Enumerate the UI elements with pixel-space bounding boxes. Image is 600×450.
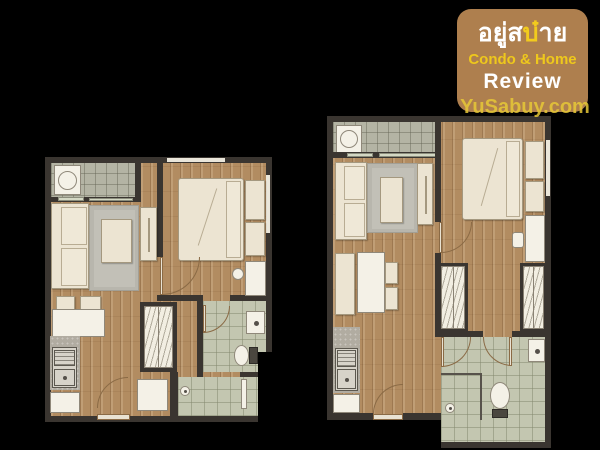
dining-table [52,309,105,337]
washing-machine-drum [340,130,358,148]
floorplan-page: { "watermark": { "bg_color": "#ae7f4e", … [0,0,600,450]
shoe-cabinet [137,379,168,411]
washing-machine-drum [58,171,77,190]
coffee-table [380,177,403,223]
watermark-thai-accent: บ๋ [523,19,539,47]
washing-machine [336,125,362,153]
shower-head [180,386,190,396]
blanket-fold [198,188,217,245]
tv-console [140,207,157,261]
tv-console [417,163,433,225]
kitchen-sink [337,369,356,389]
dining-table [357,252,385,313]
toilet-tank [492,409,508,418]
plan-notch [258,352,272,422]
wall-bottom [403,413,441,420]
dining-chair [80,296,101,310]
sofa-cushion [61,248,87,286]
blanket-fold [481,148,498,206]
desk [525,215,545,262]
watermark-tagline: Condo & Home [457,51,588,68]
wall-bedroom [435,116,441,222]
tv-console-handle [148,218,150,252]
base-cabinet [50,392,80,413]
double-bed [178,178,244,261]
bedside-cabinet [245,180,265,220]
balcony-sliding-door [89,198,133,201]
shower-head-dot [184,390,187,393]
washing-machine [54,165,81,195]
wash-basin [246,311,265,334]
shower-enclosure [441,373,482,420]
watermark-website: YuSabuy.com [460,96,590,119]
toilet [234,345,249,366]
vanity-desk [245,261,266,296]
kitchen-sink [54,369,75,386]
toilet [490,382,510,409]
dining-chair [385,287,398,310]
desk-chair [512,232,524,248]
balcony-sliding-door [379,153,437,157]
sofa-cushion [344,203,365,237]
wall-bottom [327,413,373,420]
bed-pillows [226,181,241,258]
wall-shower [170,372,178,416]
dining-bench [335,253,355,315]
dining-chair [56,296,75,310]
watermark-review: Review [457,70,588,94]
watermark-thai-title: อยู่สบ๋าย [457,19,588,47]
sofa [51,203,89,289]
bedside-cabinet [245,222,265,256]
wardrobe-divider [453,266,454,329]
basin-drain [535,349,540,354]
entrance-door [97,414,130,420]
base-cabinet [333,394,360,413]
balcony-sliding-door [347,153,373,157]
wardrobe-divider [158,306,159,368]
tv-console-handle [425,176,427,214]
shower-head-dot [449,407,452,410]
plan-notch [327,420,441,448]
stove [54,350,75,366]
watermark-thai-part1: อยู่ส [478,19,523,47]
bedroom-window [266,175,270,233]
bedside-cabinet [525,141,544,179]
double-bed [462,138,523,220]
floorplan-unit-b [327,116,551,448]
bedside-cabinet [525,181,544,212]
stool [232,268,244,280]
balcony-sliding-door [58,197,84,201]
floorplan-unit-a [45,157,272,422]
coffee-table [101,219,132,263]
faucet [345,378,349,382]
wardrobe-divider [533,266,534,329]
sofa [335,162,367,240]
shower-head [445,403,455,413]
sofa-cushion [61,207,87,245]
toilet-tank [249,347,258,364]
wall-bedroom [157,157,163,257]
shower-shelf [241,379,247,409]
sofa-cushion [344,166,365,200]
dining-chair [385,262,398,284]
faucet [63,376,67,380]
bedroom-window [167,158,225,162]
basin-drain [254,321,259,326]
wall [135,157,141,202]
watermark-thai-part2: าย [539,19,568,47]
bed-pillows [506,141,520,217]
wash-basin [528,339,545,362]
stove [337,350,356,367]
bedroom-window [546,140,550,196]
